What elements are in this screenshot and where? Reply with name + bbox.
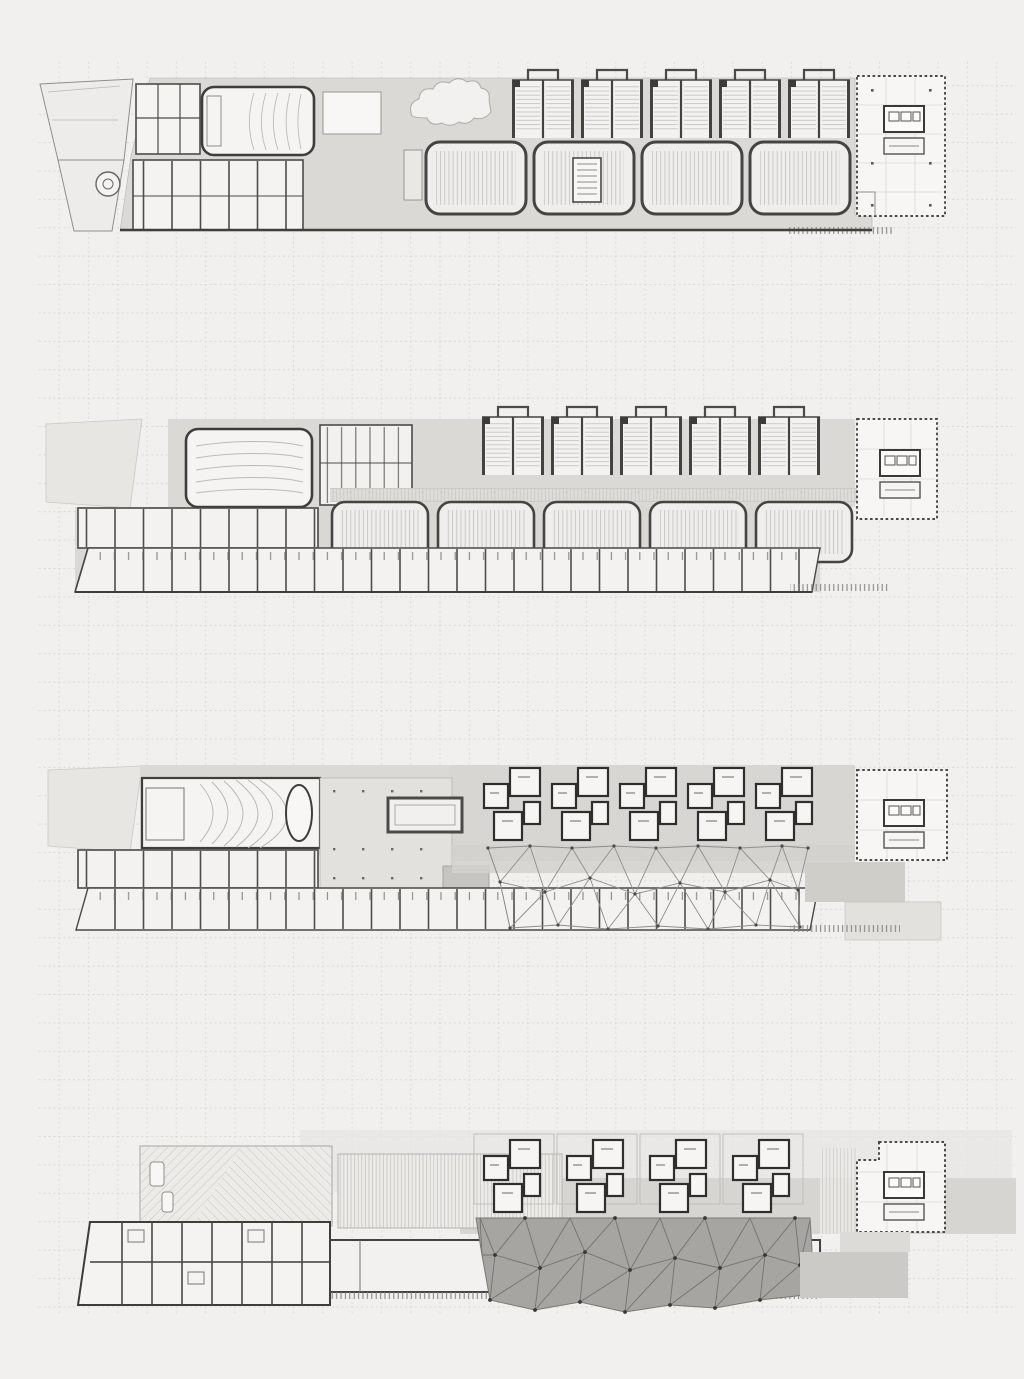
plan4-hatched-roof (140, 1146, 332, 1226)
exhibition-module (719, 70, 781, 138)
theatre-hall (642, 142, 742, 214)
exhibition-module (758, 407, 820, 475)
plan1-exhibition-modules (512, 70, 850, 138)
theatre-hall (750, 142, 850, 214)
plan4-canopy-roof (476, 1216, 812, 1314)
exhibition-module (620, 407, 682, 475)
plan1-office-tower (857, 76, 945, 216)
plan4-lower-slab (840, 1232, 910, 1252)
pool (388, 798, 462, 832)
architectural-drawing (0, 0, 1024, 1379)
drafting-grid (36, 60, 1016, 1316)
plan3-ghost-wedge (48, 766, 142, 852)
plan3-office-tower (857, 770, 947, 860)
plan3-lower-slab (845, 902, 941, 940)
theatre-hall (426, 142, 526, 214)
floor-plan-2 (46, 407, 937, 592)
exhibition-module (581, 70, 643, 138)
plan4-room-rows (78, 1222, 330, 1305)
floor-plan-1 (40, 70, 945, 234)
exhibition-module (788, 70, 850, 138)
plan4-striped-deck-right (820, 1148, 858, 1234)
plan3-roof-slab (805, 862, 905, 902)
plan4-roof-slab (800, 1252, 908, 1298)
plan3-fan-auditorium (142, 778, 320, 848)
plan2-exhibition-modules (482, 407, 820, 475)
plan2-auditorium (186, 429, 312, 507)
exhibition-module (650, 70, 712, 138)
tower-core (880, 450, 920, 498)
exhibition-module (689, 407, 751, 475)
exhibition-module (551, 407, 613, 475)
plan3-tick-band (790, 925, 900, 932)
tower-core (884, 1172, 924, 1220)
floor-plan-4 (78, 1130, 1016, 1314)
exhibition-module (512, 70, 574, 138)
tower-core (884, 800, 924, 848)
plan2-ghost-wedge (46, 419, 142, 508)
canopy-surface (476, 1218, 812, 1312)
plan1-foyer-room (323, 92, 381, 134)
plan2-office-tower (857, 419, 937, 519)
exhibition-module (482, 407, 544, 475)
tower-core (884, 106, 924, 154)
plan-sheet (0, 0, 1024, 1379)
plan1-theatre-halls (404, 142, 850, 214)
floor-plan-3 (48, 765, 947, 940)
plan1-auditorium (202, 87, 314, 155)
stage (286, 785, 312, 841)
plan2-tick-band (790, 584, 890, 591)
stair-shaft (573, 158, 601, 202)
